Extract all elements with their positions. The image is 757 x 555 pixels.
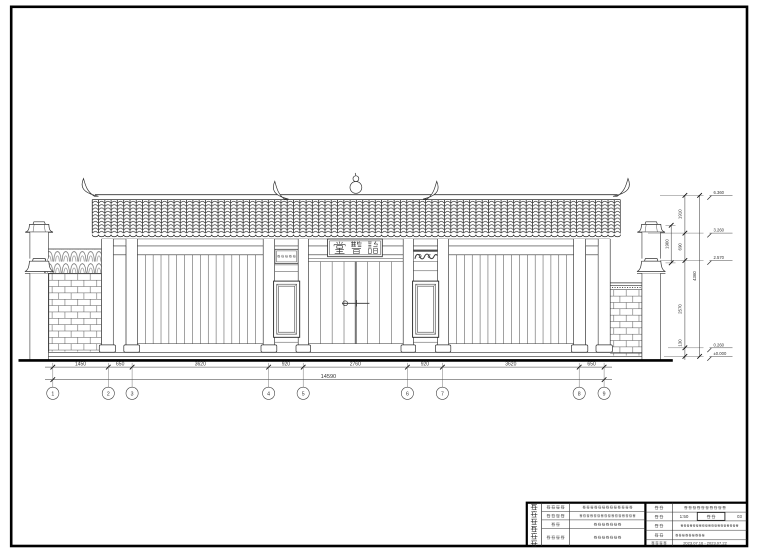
svg-text:3620: 3620 — [505, 361, 516, 367]
svg-text:650: 650 — [116, 361, 125, 367]
svg-text:6: 6 — [406, 391, 409, 397]
svg-text:1:50: 1:50 — [680, 514, 689, 519]
svg-text:690: 690 — [678, 243, 683, 251]
svg-text:1900: 1900 — [664, 239, 669, 249]
svg-text:1450: 1450 — [75, 361, 86, 367]
svg-text:3620: 3620 — [195, 361, 206, 367]
svg-text:3: 3 — [131, 391, 134, 397]
svg-text:14590: 14590 — [321, 374, 337, 380]
svg-text:2: 2 — [107, 391, 110, 397]
svg-text:3.260: 3.260 — [714, 228, 725, 233]
svg-text:9: 9 — [603, 391, 606, 397]
svg-text:0.260: 0.260 — [714, 342, 725, 347]
svg-text:±0.000: ±0.000 — [714, 351, 727, 356]
svg-text:2.570: 2.570 — [714, 255, 725, 260]
svg-text:2023.07.16 - 2023.07.22: 2023.07.16 - 2023.07.22 — [683, 540, 727, 545]
svg-text:5: 5 — [302, 391, 305, 397]
svg-text:920: 920 — [421, 361, 430, 367]
svg-text:6.360: 6.360 — [714, 190, 725, 195]
svg-text:650: 650 — [587, 361, 596, 367]
svg-text:2570: 2570 — [678, 304, 683, 314]
svg-text:2760: 2760 — [350, 361, 361, 367]
svg-text:4360: 4360 — [692, 271, 697, 281]
svg-text:03: 03 — [737, 514, 742, 519]
svg-text:920: 920 — [282, 361, 291, 367]
svg-text:7: 7 — [441, 391, 444, 397]
svg-text:1: 1 — [51, 391, 54, 397]
svg-text:4: 4 — [267, 391, 270, 397]
svg-text:8: 8 — [578, 391, 581, 397]
svg-text:1910: 1910 — [678, 209, 683, 219]
svg-text:130: 130 — [678, 339, 683, 347]
